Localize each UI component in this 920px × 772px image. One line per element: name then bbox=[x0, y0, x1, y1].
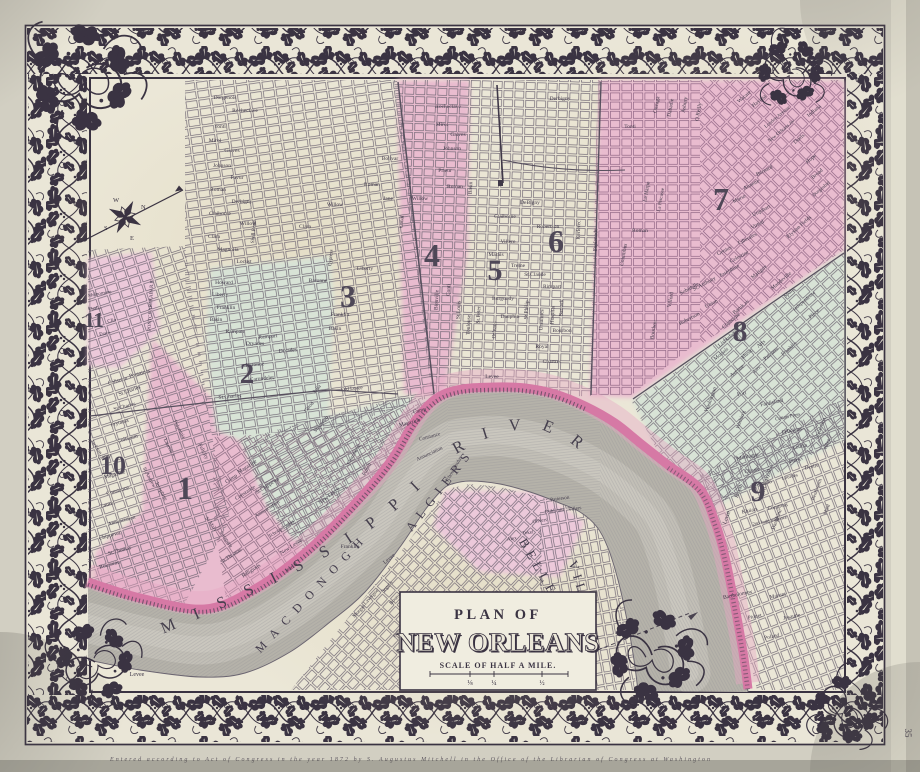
svg-text:Johnson: Johnson bbox=[213, 163, 231, 169]
svg-text:4: 4 bbox=[424, 237, 440, 273]
svg-text:Willow: Willow bbox=[412, 196, 428, 202]
svg-text:Galves: Galves bbox=[224, 148, 239, 154]
svg-text:Rocheclave: Rocheclave bbox=[232, 108, 258, 114]
svg-text:Kerlerec: Kerlerec bbox=[576, 220, 583, 240]
svg-text:Johnson: Johnson bbox=[443, 146, 461, 152]
svg-text:Clara: Clara bbox=[208, 234, 220, 240]
svg-text:Liberty: Liberty bbox=[212, 292, 228, 298]
svg-text:Burgundy: Burgundy bbox=[492, 296, 514, 302]
svg-text:Franklin: Franklin bbox=[217, 305, 236, 311]
svg-text:Claiborne: Claiborne bbox=[494, 214, 516, 220]
svg-text:Bourbon: Bourbon bbox=[552, 328, 572, 334]
svg-text:6: 6 bbox=[548, 223, 564, 259]
svg-text:Roman: Roman bbox=[632, 228, 648, 234]
svg-text:Levee: Levee bbox=[485, 374, 499, 380]
svg-text:PLAN OF: PLAN OF bbox=[454, 607, 542, 623]
svg-text:N: N bbox=[141, 204, 146, 211]
svg-text:Derbigny: Derbigny bbox=[232, 199, 253, 205]
svg-text:Chartres: Chartres bbox=[543, 359, 562, 365]
svg-text:St.Louis: St.Louis bbox=[456, 301, 463, 320]
svg-text:Tonti: Tonti bbox=[624, 124, 636, 130]
svg-text:11: 11 bbox=[84, 308, 104, 332]
svg-text:Basin: Basin bbox=[468, 181, 474, 194]
svg-text:Rimpart: Rimpart bbox=[543, 284, 561, 290]
svg-text:Magnolia: Magnolia bbox=[217, 247, 239, 253]
svg-text:Esplanade: Esplanade bbox=[593, 228, 600, 251]
svg-text:Dauphin: Dauphin bbox=[501, 314, 520, 320]
svg-text:Barrack: Barrack bbox=[559, 299, 566, 317]
svg-text:St.Peter: St.Peter bbox=[476, 306, 483, 324]
svg-text:Roman: Roman bbox=[364, 182, 380, 188]
svg-text:2: 2 bbox=[240, 358, 255, 390]
svg-text:½: ½ bbox=[539, 679, 544, 687]
svg-text:Liberty: Liberty bbox=[357, 266, 373, 272]
svg-text:Royal: Royal bbox=[535, 344, 549, 350]
svg-text:5: 5 bbox=[488, 254, 503, 287]
svg-text:Hospital: Hospital bbox=[550, 305, 557, 324]
svg-text:Roman: Roman bbox=[210, 187, 226, 193]
svg-text:9: 9 bbox=[751, 475, 766, 508]
svg-text:St.Claude: St.Claude bbox=[524, 272, 546, 278]
svg-text:Dorgenois: Dorgenois bbox=[214, 95, 237, 101]
svg-text:Toulouse: Toulouse bbox=[465, 314, 472, 335]
svg-text:Dryades: Dryades bbox=[246, 341, 264, 347]
svg-text:Basin: Basin bbox=[210, 317, 223, 323]
svg-text:Howard: Howard bbox=[215, 280, 233, 286]
svg-text:Pavur: Pavur bbox=[231, 175, 244, 181]
svg-text:Bienville: Bienville bbox=[433, 289, 440, 310]
svg-text:E: E bbox=[130, 235, 134, 242]
svg-text:Roman: Roman bbox=[447, 184, 463, 190]
svg-text:Levee: Levee bbox=[130, 672, 145, 678]
svg-text:Rampart: Rampart bbox=[226, 329, 245, 335]
svg-text:8: 8 bbox=[733, 315, 748, 348]
svg-text:W: W bbox=[113, 197, 120, 204]
svg-text:Baronne: Baronne bbox=[309, 278, 328, 284]
svg-text:Derbigny: Derbigny bbox=[550, 96, 571, 102]
svg-text:Galves: Galves bbox=[450, 132, 465, 138]
svg-text:1: 1 bbox=[177, 470, 193, 506]
svg-text:Mirol: Mirol bbox=[436, 122, 449, 128]
svg-text:Tonti: Tonti bbox=[214, 124, 226, 130]
svg-text:Treme: Treme bbox=[511, 263, 526, 269]
svg-text:7: 7 bbox=[713, 181, 729, 217]
svg-text:Claiborne: Claiborne bbox=[209, 211, 231, 217]
svg-text:S: S bbox=[104, 225, 108, 232]
svg-text:Prieur: Prieur bbox=[438, 168, 452, 174]
svg-text:St.Philip: St.Philip bbox=[524, 300, 531, 320]
svg-text:3: 3 bbox=[340, 278, 356, 314]
svg-text:Clara: Clara bbox=[299, 224, 311, 230]
svg-text:Orleans: Orleans bbox=[492, 321, 499, 338]
svg-text:Willow: Willow bbox=[327, 202, 343, 208]
svg-text:Basin: Basin bbox=[329, 326, 342, 332]
svg-text:⅛: ⅛ bbox=[467, 679, 473, 687]
svg-text:¼: ¼ bbox=[491, 679, 496, 687]
svg-text:Villere: Villere bbox=[501, 239, 516, 245]
svg-text:Locust: Locust bbox=[237, 259, 252, 265]
svg-text:SCALE OF HALF A MILE.: SCALE OF HALF A MILE. bbox=[440, 661, 557, 670]
svg-text:DeBigny: DeBigny bbox=[520, 200, 540, 206]
svg-text:Ursulines: Ursulines bbox=[538, 309, 545, 330]
svg-text:Mirol: Mirol bbox=[209, 138, 222, 144]
svg-text:10: 10 bbox=[100, 451, 126, 480]
svg-text:Conti: Conti bbox=[446, 283, 453, 296]
svg-text:Jane: Jane bbox=[383, 196, 393, 202]
svg-text:NEW ORLEANS: NEW ORLEANS bbox=[396, 627, 599, 657]
svg-text:Rocheclave: Rocheclave bbox=[435, 104, 461, 110]
svg-text:Bolivar: Bolivar bbox=[382, 156, 399, 162]
